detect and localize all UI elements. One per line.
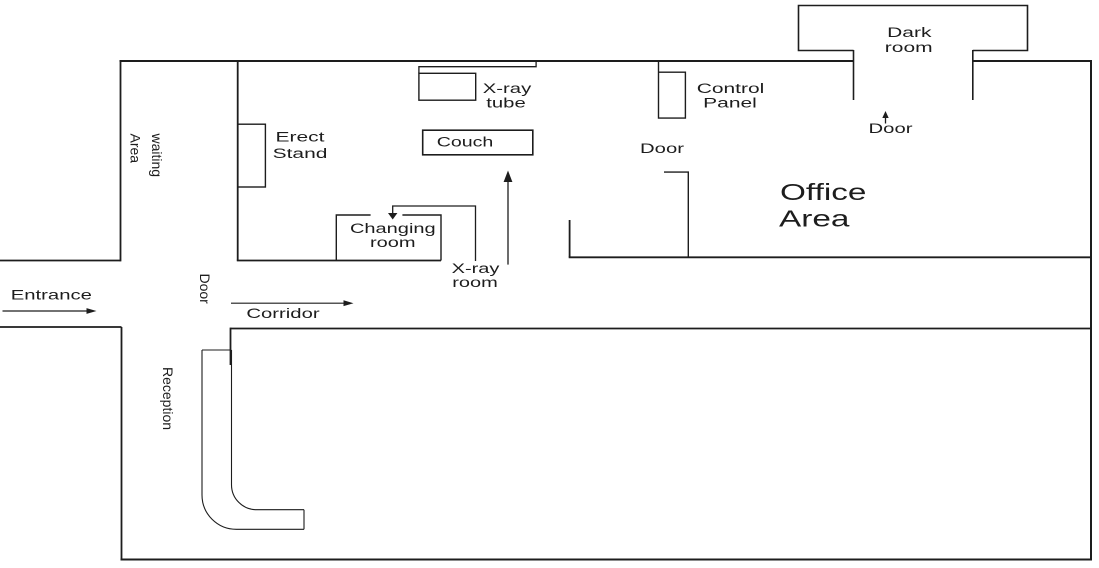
svg-text:Area: Area bbox=[128, 134, 144, 164]
svg-text:Control: Control bbox=[697, 80, 765, 96]
svg-text:room: room bbox=[452, 274, 498, 290]
svg-text:Reception: Reception bbox=[160, 367, 176, 430]
svg-text:Panel: Panel bbox=[703, 95, 757, 111]
svg-text:room: room bbox=[370, 234, 416, 250]
svg-text:waiting: waiting bbox=[149, 133, 165, 178]
svg-text:Door: Door bbox=[869, 120, 913, 136]
svg-text:Couch: Couch bbox=[437, 134, 494, 150]
svg-text:Office: Office bbox=[780, 180, 866, 206]
svg-text:Erect: Erect bbox=[276, 129, 325, 145]
svg-text:room: room bbox=[885, 39, 933, 55]
svg-text:Door: Door bbox=[197, 274, 213, 305]
svg-text:Corridor: Corridor bbox=[246, 305, 319, 321]
svg-text:tube: tube bbox=[486, 94, 525, 110]
svg-text:Area: Area bbox=[779, 206, 849, 232]
svg-text:Dark: Dark bbox=[887, 24, 931, 40]
svg-text:Stand: Stand bbox=[273, 145, 328, 161]
svg-text:Entrance: Entrance bbox=[11, 287, 92, 303]
svg-text:Door: Door bbox=[640, 140, 684, 156]
